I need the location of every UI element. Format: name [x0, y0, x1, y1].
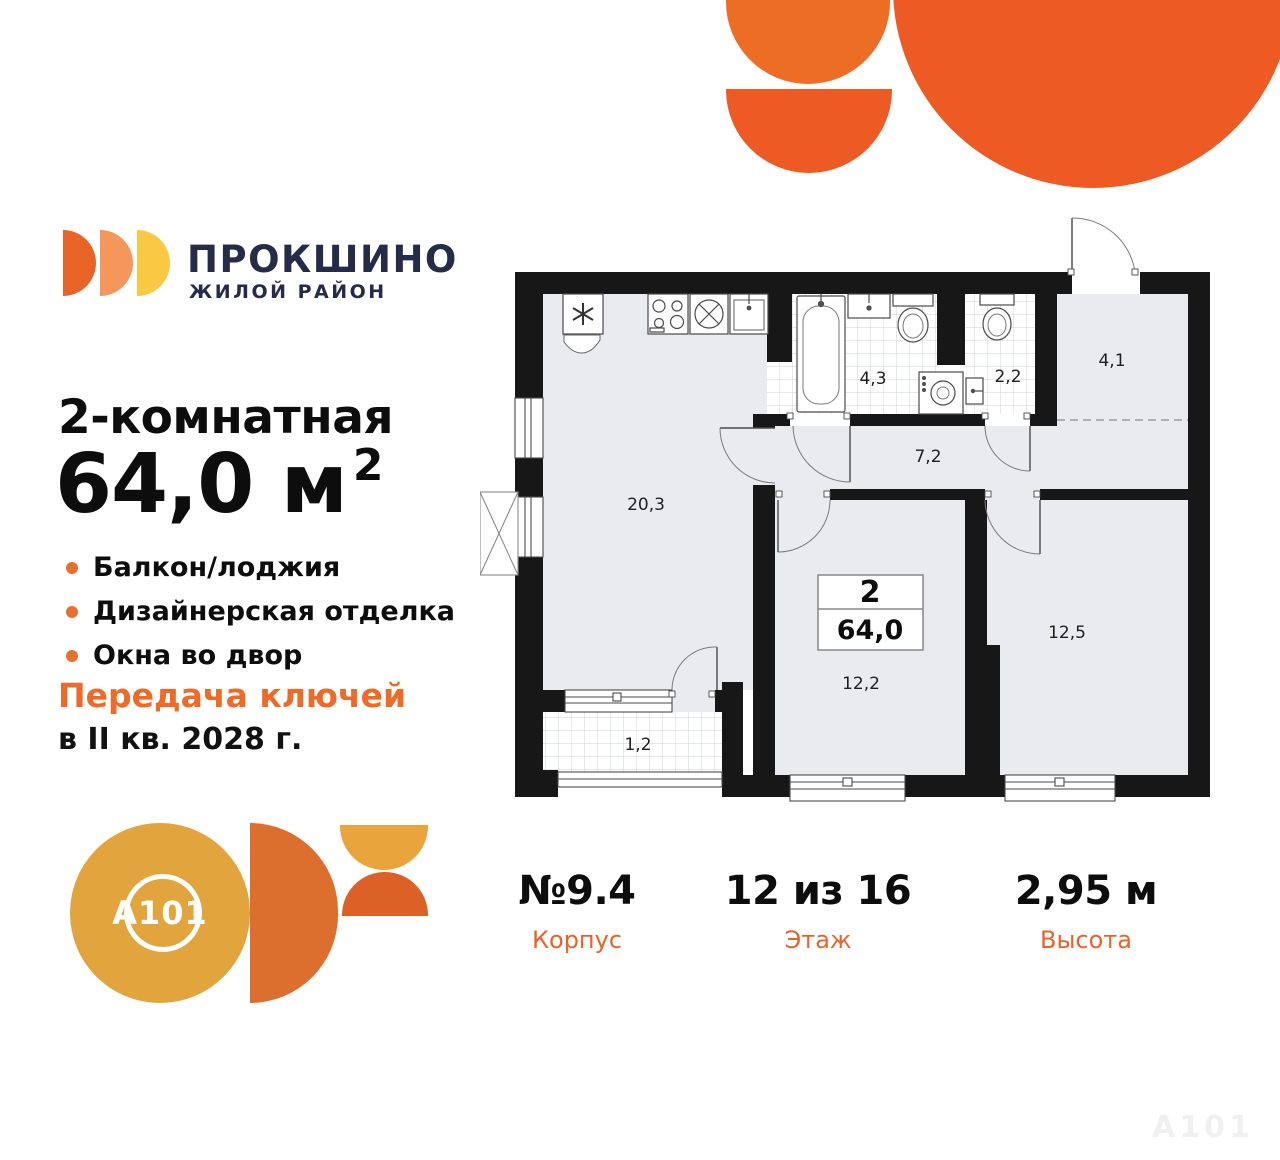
washing-machine-icon — [919, 372, 963, 414]
label-loggia: 4,1 — [1098, 351, 1125, 371]
ac-unit-icon — [480, 492, 518, 575]
floor-value: 12 из 16 — [708, 868, 928, 914]
watermark: A101 — [1152, 1110, 1254, 1145]
info-rooms-count: 2 — [860, 575, 881, 610]
window-living-balcony — [565, 690, 672, 712]
balcony-glazing — [558, 772, 722, 787]
feature-item: Окна во двор — [66, 640, 455, 671]
stove-icon — [648, 294, 688, 334]
brand-tagline: ЖИЛОЙ РАЙОН — [189, 281, 387, 303]
label-living: 20,3 — [627, 495, 665, 515]
spec-building: №9.4 Корпус — [467, 868, 687, 954]
info-total-area: 64,0 — [837, 615, 904, 646]
logo-halfdisk-yellow — [137, 230, 170, 296]
brand-name: ПРОКШИНО — [187, 238, 458, 281]
logo-halfdisk-salmon — [100, 230, 133, 296]
tap-sink-icon — [730, 294, 768, 334]
building-value: №9.4 — [467, 868, 687, 914]
spec-floor: 12 из 16 Этаж — [708, 868, 928, 954]
deco-halfcircle-small — [726, 0, 890, 84]
label-balcony: 1,2 — [624, 735, 651, 755]
feature-label: Дизайнерская отделка — [93, 596, 455, 627]
area-value: 64,0 — [55, 437, 253, 532]
window-left-2 — [515, 497, 543, 557]
area-superscript: 2 — [353, 440, 383, 491]
label-bedroom2: 12,5 — [1048, 623, 1086, 643]
deco-halfcircle-medium — [726, 89, 892, 173]
plan-info-box: 2 64,0 — [818, 575, 923, 650]
handover-title: Передача ключей — [58, 676, 406, 715]
feature-item: Дизайнерская отделка — [66, 596, 455, 627]
window-bedroom2 — [1005, 775, 1115, 801]
label-bedroom1: 12,2 — [842, 674, 880, 694]
floor-plan: 20,3 4,3 2,2 7,2 4,1 12,2 12,5 1,2 2 64,… — [480, 210, 1220, 810]
window-left-1 — [515, 398, 543, 458]
height-label: Высота — [976, 926, 1196, 954]
logo-halfdisk-orange — [63, 230, 96, 296]
handover-date: в II кв. 2028 г. — [58, 722, 302, 757]
a101-bowl-yellow — [340, 825, 428, 870]
bullet-dot-icon — [66, 606, 78, 618]
wc-mini-basin-icon — [966, 378, 983, 404]
label-hallway: 7,2 — [914, 447, 941, 467]
height-value: 2,95 м — [976, 868, 1196, 914]
bathtub-icon — [797, 294, 845, 412]
bullet-dot-icon — [66, 562, 78, 574]
feature-label: Балкон/лоджия — [93, 552, 340, 583]
listing-area: 64,0 м2 — [55, 437, 383, 532]
a101-logo-text: A101 — [70, 823, 250, 1003]
washbasin-icon — [848, 294, 890, 318]
label-bathroom: 4,3 — [859, 369, 886, 389]
a101-dome-orange — [342, 872, 428, 916]
window-bedroom1 — [790, 775, 905, 801]
label-wc: 2,2 — [994, 367, 1021, 387]
feature-item: Балкон/лоджия — [66, 552, 455, 583]
a101-halfdisk — [250, 823, 338, 1003]
feature-list: Балкон/лоджия Дизайнерская отделка Окна … — [66, 552, 455, 684]
fridge-icon — [563, 294, 603, 353]
deco-circle-large — [893, 0, 1280, 188]
bullet-dot-icon — [66, 650, 78, 662]
floor-label: Этаж — [708, 926, 928, 954]
building-label: Корпус — [467, 926, 687, 954]
wc-toilet-icon — [980, 294, 1014, 340]
spec-height: 2,95 м Высота — [976, 868, 1196, 954]
feature-label: Окна во двор — [93, 640, 302, 671]
sink-icon — [690, 294, 728, 334]
area-unit: м — [281, 437, 347, 532]
flyer-canvas: ПРОКШИНО ЖИЛОЙ РАЙОН 2-комнатная 64,0 м2… — [0, 0, 1280, 1160]
